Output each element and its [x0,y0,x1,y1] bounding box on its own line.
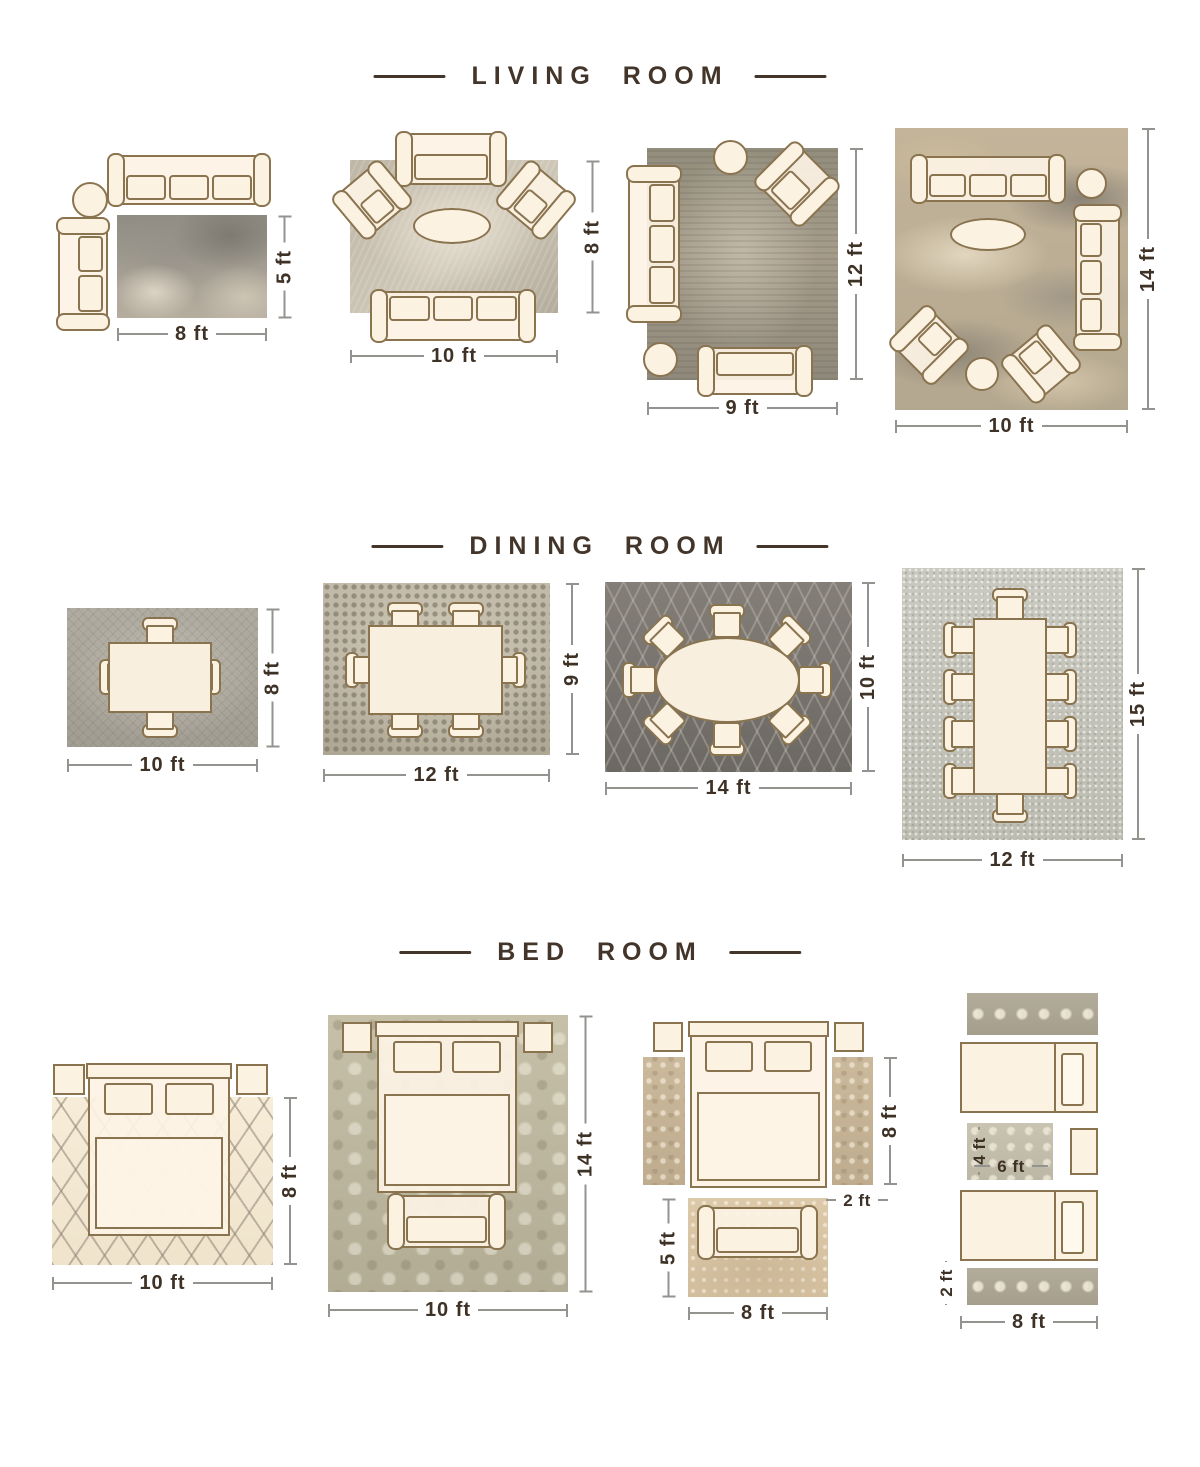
rug-width-label: 10 ft [424,346,484,366]
seat-cushion [389,296,430,321]
dimension-line [867,707,869,770]
dimension-tick [884,1183,897,1185]
title-dash [371,545,443,548]
dimension-line [325,774,406,776]
rug-width-label: 10 ft [132,1273,192,1293]
dimension-tick [884,1057,897,1059]
seat-cushion [1010,174,1047,197]
dimension-tick [1142,128,1155,130]
dimension-line [962,1321,1005,1323]
dimension-tick [662,1199,675,1201]
dimension-line [54,1282,132,1284]
nightstand [342,1022,372,1053]
dining-table [108,642,212,713]
dimension-line [571,585,573,645]
foot-rug-height-dimension: 5 ft [658,1199,680,1298]
dimension-line [1137,570,1139,674]
dimension-tick [548,769,550,782]
runner-height-label: 8 ft [880,1097,900,1145]
title-dash [729,951,801,954]
dining-chair [622,662,656,698]
oval-dining-table [655,637,800,723]
dimension-line [878,1199,888,1201]
loveseat [398,133,504,185]
rug-height-label: 10 ft [858,647,878,707]
rug-width-label: 9 ft [719,398,767,418]
seat-cushion [406,1216,487,1243]
dimension-tick [862,582,875,584]
dimension-line [284,291,286,317]
dimension-tick [826,1307,828,1320]
dimension-tick [850,782,852,795]
dimension-line [690,1312,734,1314]
dimension-line [889,1059,891,1097]
seat-cushion [716,1227,799,1253]
round-side-table [1076,168,1107,199]
pillow [705,1041,753,1072]
rug-width-label: 14 ft [698,778,758,798]
dining-chair [1043,716,1077,752]
dimension-line [897,425,981,427]
dining-chair [709,722,745,756]
dimension-line [1053,1321,1096,1323]
rug-height-label: 12 ft [846,234,866,294]
dimension-line [974,1165,990,1167]
dimension-line [478,1309,566,1311]
dining-chair [943,763,977,799]
dimension-tick [266,746,279,748]
dimension-line [352,355,424,357]
dimension-line [649,407,719,409]
dimension-line [216,333,265,335]
rug-height-label: 9 ft [562,645,582,693]
foot-rug-width-dimension: 8 ft [688,1302,828,1324]
loveseat [700,347,810,395]
nightstand [1070,1128,1098,1175]
dimension-tick [579,1016,592,1018]
dimension-tick [862,770,875,772]
rug-height-dimension: 8 ft [582,161,604,314]
dimension-line [289,1205,291,1263]
dimension-line [193,1282,271,1284]
dimension-line [272,611,274,655]
round-side-table [713,140,748,175]
seat-cushion [716,352,794,376]
dimension-line [193,764,256,766]
dimension-line [978,1127,980,1130]
seat-cushion [1080,223,1102,257]
dimension-tick [836,402,838,415]
dimension-line [467,774,548,776]
seat-cushion [414,154,488,180]
dimension-line [759,787,850,789]
dimension-line [782,1312,826,1314]
dimension-line [1137,734,1139,838]
rug-height-dimension: 15 ft [1127,568,1149,840]
rug-width-dimension: 12 ft [323,764,550,786]
dimension-tick [1096,1316,1098,1329]
dimension-tick [566,1304,568,1317]
loveseat [700,1207,815,1258]
dimension-line [585,1018,587,1124]
rug-height-dimension: 8 ft [262,609,284,748]
rug-height-dimension: 9 ft [561,583,583,755]
rug-width-label: 10 ft [132,755,192,775]
rug [117,215,267,318]
runner-height-dimension: 2 ft [936,1261,956,1305]
dimension-line [571,693,573,753]
section-title-bed-room: BED ROOM [399,938,801,967]
rug-height-dimension: 14 ft [1137,128,1159,410]
dimension-tick [256,759,258,772]
section-title-text: LIVING ROOM [471,62,728,91]
nightstand [834,1022,864,1052]
rug-height-dimension: 12 ft [845,148,867,380]
dimension-line [1042,425,1126,427]
seat-cushion [969,174,1006,197]
rug-width-dimension: 10 ft [328,1299,568,1321]
dining-chair [1043,622,1077,658]
runner-rug [967,1268,1098,1305]
seat-cushion [649,184,675,222]
round-side-table [72,182,108,218]
dimension-tick [284,1097,297,1099]
center-rug-width-dimension: 6 ft [974,1156,1048,1176]
seat-cushion [1080,298,1102,332]
seat-cushion [78,276,103,313]
dimension-line [592,261,594,312]
title-dash [399,951,471,954]
pillow [452,1041,501,1073]
dining-chair [943,669,977,705]
rug-height-label: 14 ft [1138,239,1158,299]
rug-height-dimension: 14 ft [575,1016,597,1293]
nightstand [653,1022,683,1052]
pillow [165,1083,215,1115]
round-side-table [965,357,999,391]
dimension-line [1147,130,1149,239]
rug-size-guide: LIVING ROOM 5 ft 8 ft 8 ft [0,0,1200,1467]
seat-cushion [649,225,675,263]
dimension-line [69,764,132,766]
rug-width-label: 10 ft [418,1300,478,1320]
dimension-tick [284,1263,297,1265]
sofa [373,291,533,341]
dining-chair [943,622,977,658]
seat-cushion [126,175,166,200]
dimension-line [668,1272,670,1296]
loveseat [58,220,108,328]
dimension-line [945,1304,947,1305]
title-dash [757,545,829,548]
dimension-tick [271,1277,273,1290]
dimension-tick [586,312,599,314]
pillow [764,1041,812,1072]
dimension-tick [566,753,579,755]
dimension-line [119,333,168,335]
dimension-line [284,218,286,244]
seat-cushion [929,174,966,197]
foot-rug-width-label: 8 ft [734,1303,782,1323]
seat-cushion [916,320,954,358]
rug-height-label: 14 ft [576,1124,596,1184]
twin-bed [960,1190,1098,1261]
dimension-tick [265,328,267,341]
dimension-tick [850,378,863,380]
sofa [110,155,268,205]
dimension-line [330,1309,418,1311]
rug-width-dimension: 10 ft [350,345,558,367]
nightstand [523,1022,553,1053]
dimension-tick [266,609,279,611]
runner-rug [967,993,1098,1035]
runner-width-label: 2 ft [836,1192,878,1209]
rug-height-label: 15 ft [1128,674,1148,734]
dining-chair [798,662,832,698]
rug-height-label: 5 ft [275,243,295,291]
runner-rug [643,1057,685,1185]
dining-table [368,625,503,715]
dining-chair [992,588,1028,622]
dimension-line [889,1145,891,1183]
rug-width-dimension: 10 ft [895,415,1128,437]
title-dash [373,75,445,78]
rug-width-label: 12 ft [406,765,466,785]
runner-rug [832,1057,873,1185]
dimension-line [855,294,857,378]
rug-height-dimension: 10 ft [857,582,879,772]
dining-chair [709,604,745,638]
seat-cushion [359,188,396,226]
seat-cushion [476,296,517,321]
rug-width-dimension: 10 ft [67,754,258,776]
dimension-tick [586,161,599,163]
dimension-line [867,584,869,647]
dimension-line [289,1099,291,1157]
dimension-line [1043,859,1121,861]
dimension-line [607,787,698,789]
section-title-text: DINING ROOM [469,532,730,561]
dimension-line [767,407,837,409]
rug-width-label: 10 ft [981,416,1041,436]
dimension-line [1032,1165,1048,1167]
rug-height-label: 8 ft [263,654,283,702]
rug-width-dimension: 12 ft [902,849,1123,871]
dimension-line [904,859,982,861]
title-dash [755,75,827,78]
oval-coffee-table [950,218,1026,251]
rug-width-dimension: 8 ft [117,323,267,345]
dimension-tick [662,1296,675,1298]
runner-width-dimension: 8 ft [960,1311,1098,1333]
foot-rug-height-label: 5 ft [659,1224,679,1272]
dining-table [973,618,1047,795]
seat-cushion [433,296,474,321]
rug-width-label: 8 ft [168,324,216,344]
section-title-living-room: LIVING ROOM [373,62,826,91]
dimension-line [484,355,556,357]
rug-height-label: 8 ft [280,1157,300,1205]
rug-width-dimension: 10 ft [52,1272,273,1294]
dimension-tick [278,317,291,319]
rug-width-dimension: 9 ft [647,397,838,419]
seat-cushion [1017,339,1054,377]
bed [690,1022,827,1188]
runner-height-label: 2 ft [938,1262,955,1304]
dimension-tick [556,350,558,363]
dimension-line [592,163,594,214]
oval-coffee-table [413,208,491,244]
nightstand [53,1064,85,1095]
section-title-dining-room: DINING ROOM [371,532,828,561]
sofa [1075,207,1120,348]
dimension-tick [1126,420,1128,433]
dimension-tick [566,583,579,585]
runner-height-dimension: 8 ft [879,1057,901,1185]
dimension-line [668,1201,670,1225]
dimension-tick [278,216,291,218]
dimension-tick [1132,838,1145,840]
round-side-table [643,342,678,377]
seat-cushion [212,175,252,200]
bed [377,1022,517,1193]
dimension-line [585,1184,587,1290]
rug-width-label: 12 ft [982,850,1042,870]
dimension-line [855,150,857,234]
dimension-line [272,702,274,746]
dining-chair [1043,669,1077,705]
rug-width-dimension: 14 ft [605,777,852,799]
rug-height-dimension: 8 ft [279,1097,301,1265]
bed [88,1064,230,1236]
runner-width-label: 8 ft [1005,1312,1053,1332]
dimension-line [826,1199,836,1201]
seat-cushion [512,188,549,226]
dining-chair [943,716,977,752]
runner-width-dimension: 2 ft [826,1190,888,1210]
section-title-text: BED ROOM [497,938,703,967]
dimension-line [945,1261,947,1262]
sofa [628,168,680,320]
pillow [104,1083,154,1115]
dimension-line [1147,299,1149,408]
nightstand [236,1064,268,1095]
rug-height-dimension: 5 ft [274,216,296,319]
dimension-tick [1142,408,1155,410]
foot-bench [390,1195,503,1248]
seat-cushion [78,236,103,273]
seat-cushion [649,266,675,304]
dimension-tick [1121,854,1123,867]
twin-bed [960,1042,1098,1113]
sofa [913,156,1063,202]
center-rug-width-label: 6 ft [990,1158,1032,1175]
pillow [393,1041,442,1073]
seat-cushion [1080,260,1102,294]
dimension-tick [579,1291,592,1293]
seat-cushion [169,175,209,200]
dimension-tick [850,148,863,150]
dining-chair [1043,763,1077,799]
dimension-tick [1132,568,1145,570]
rug-height-label: 8 ft [583,213,603,261]
